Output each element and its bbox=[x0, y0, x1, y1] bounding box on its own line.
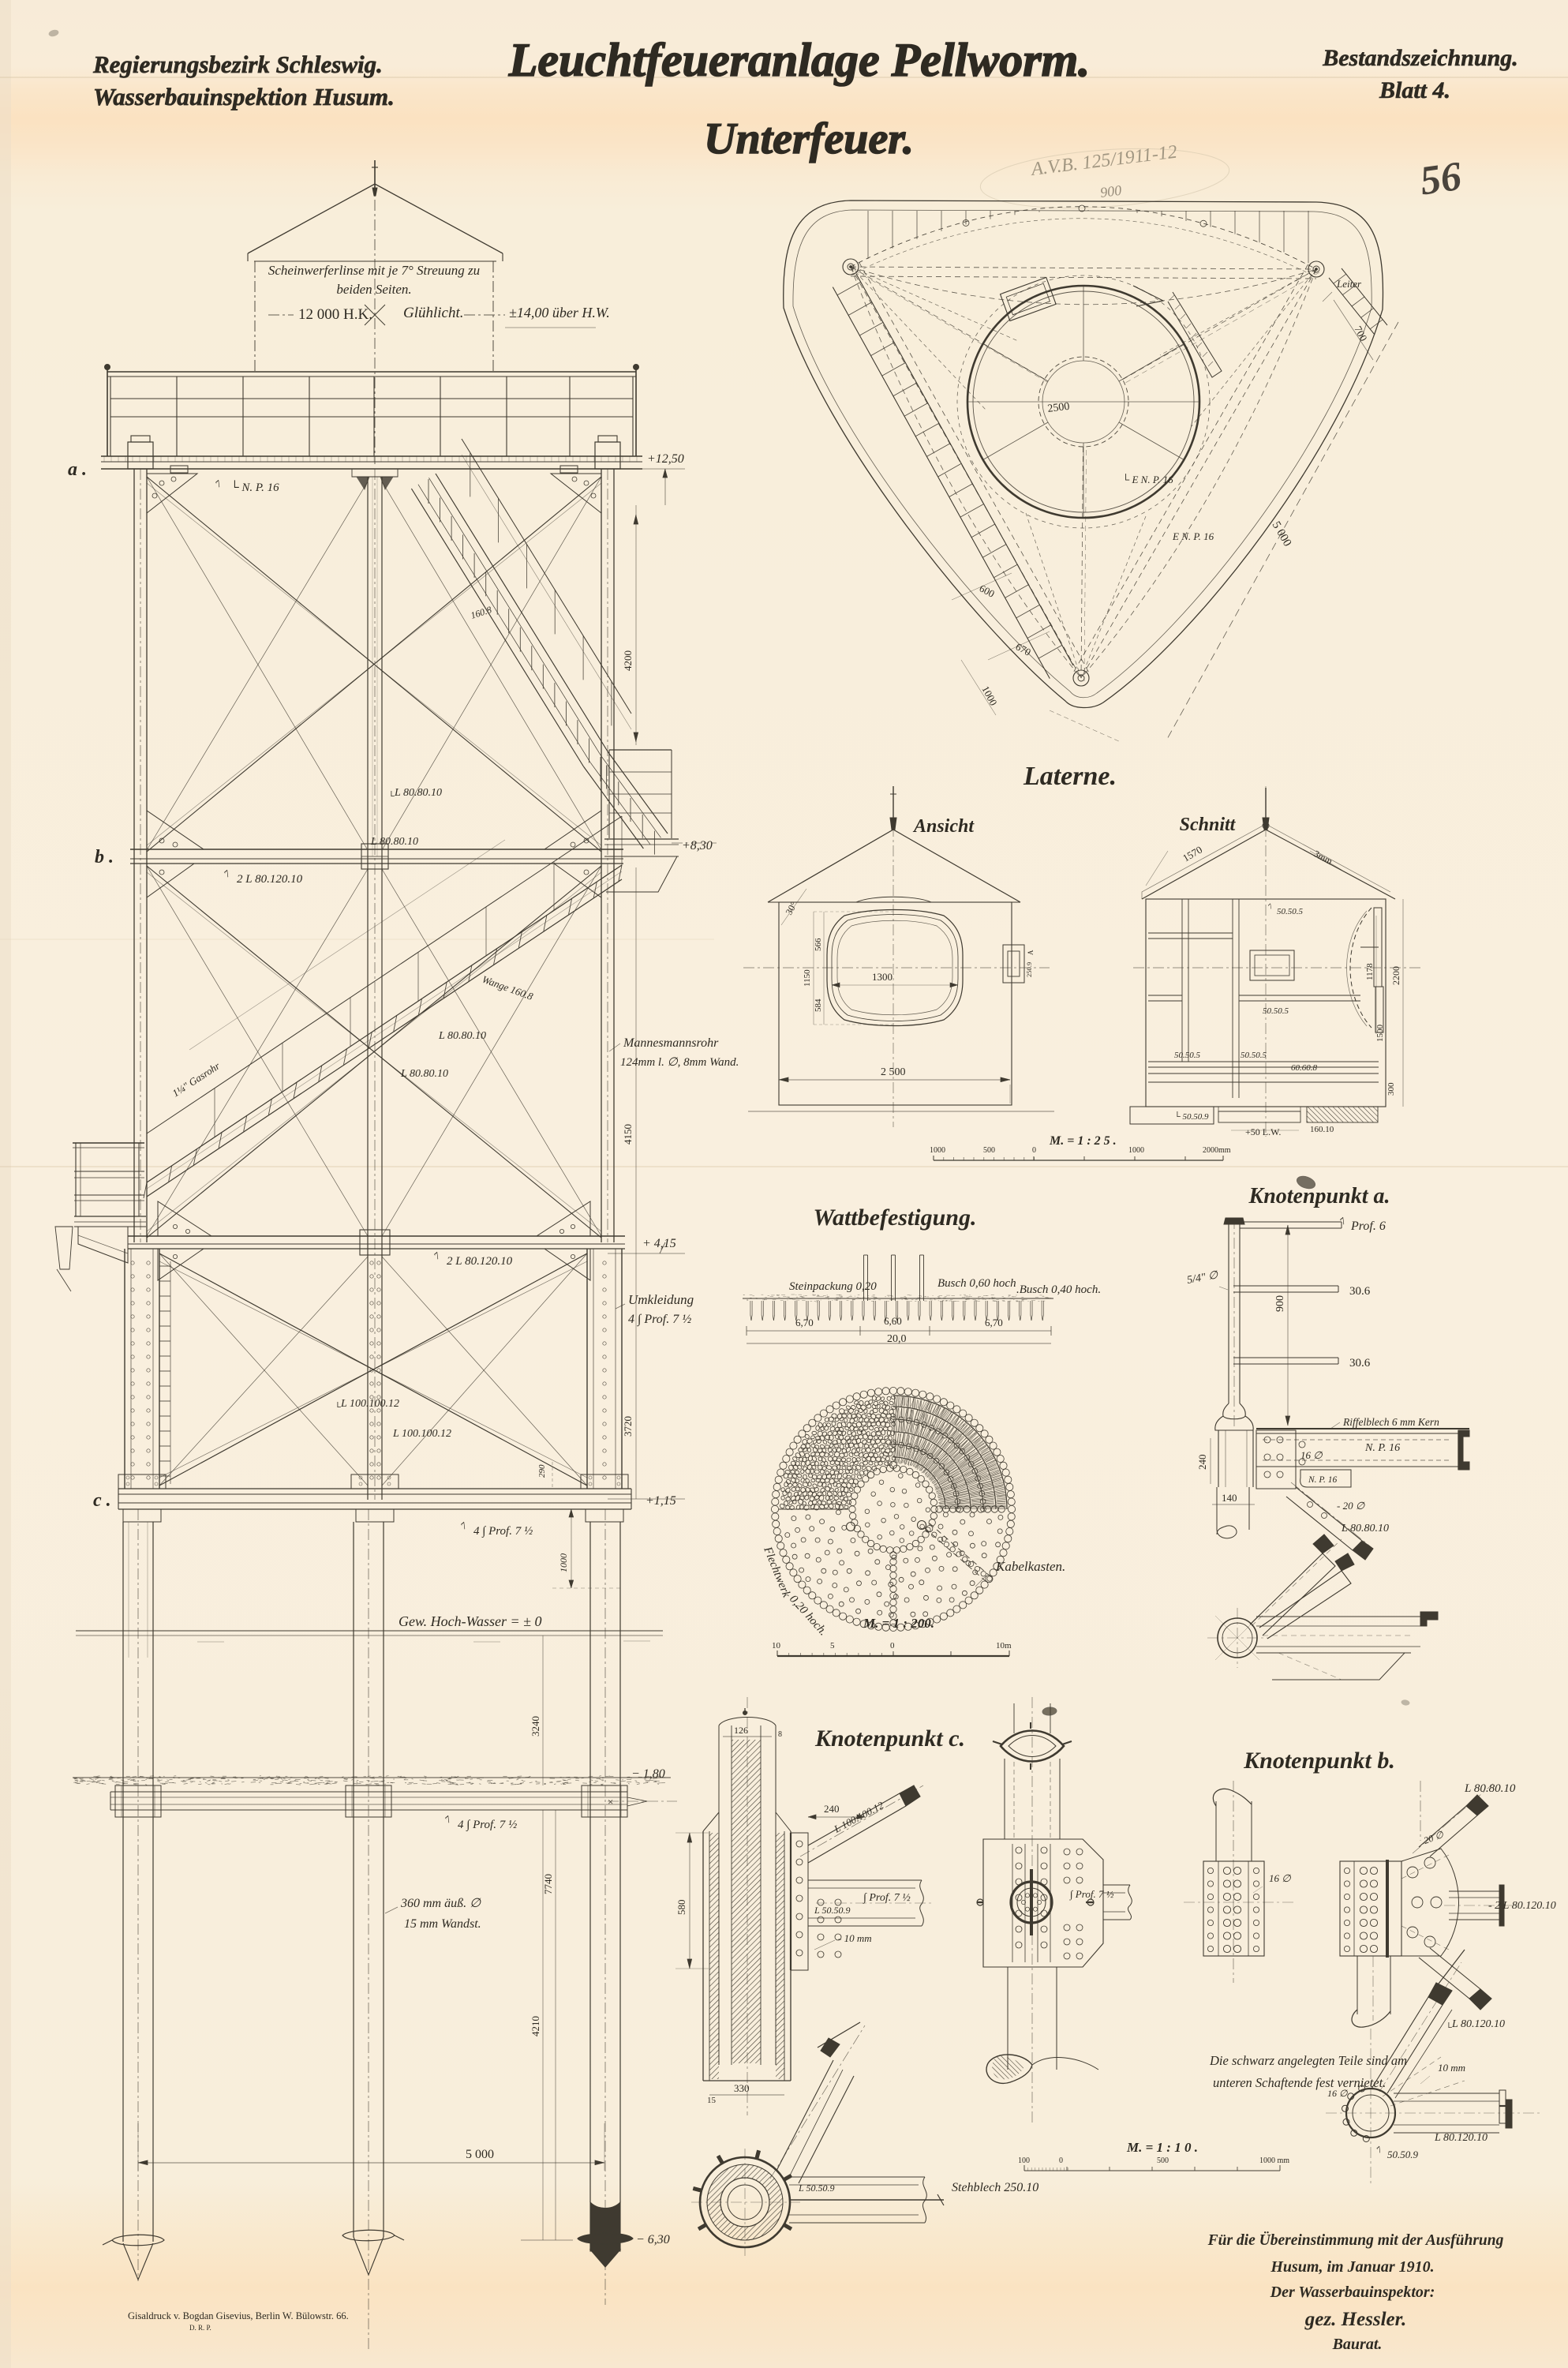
svg-text:12 000 H.K.: 12 000 H.K. bbox=[298, 306, 372, 323]
svg-text:└: └ bbox=[335, 1401, 341, 1412]
svg-text:16 ∅: 16 ∅ bbox=[1327, 2088, 1348, 2099]
svg-text:2 L 80.120.10: 2 L 80.120.10 bbox=[237, 873, 303, 886]
svg-text:584: 584 bbox=[814, 999, 823, 1012]
svg-text:50.50.5: 50.50.5 bbox=[1263, 1006, 1289, 1016]
svg-text:4 ∫ Prof. 7 ½: 4 ∫ Prof. 7 ½ bbox=[473, 1525, 533, 1538]
svg-text:3720: 3720 bbox=[622, 1416, 634, 1437]
svg-text:580: 580 bbox=[675, 1900, 687, 1916]
svg-text:2 L 80.120.10: 2 L 80.120.10 bbox=[447, 1255, 513, 1268]
svg-text:Mannesmannsrohr: Mannesmannsrohr bbox=[623, 1036, 719, 1050]
svg-text:1178: 1178 bbox=[1365, 963, 1375, 980]
svg-text:Busch 0,60 hoch: Busch 0,60 hoch bbox=[937, 1277, 1016, 1290]
svg-text:Für die Übereinstimmung mit de: Für die Übereinstimmung mit der Ausführu… bbox=[1207, 2232, 1504, 2249]
svg-text:Gew. Hoch-Wasser = ± 0: Gew. Hoch-Wasser = ± 0 bbox=[399, 1613, 542, 1629]
svg-text:L 80.80.10: L 80.80.10 bbox=[438, 1030, 486, 1042]
svg-text:6,70: 6,70 bbox=[985, 1317, 1003, 1328]
svg-text:124mm l. ∅, 8mm Wand.: 124mm l. ∅, 8mm Wand. bbox=[620, 1056, 739, 1069]
svg-text:2 500: 2 500 bbox=[881, 1066, 906, 1078]
svg-text:+8,30: +8,30 bbox=[682, 839, 713, 852]
svg-text:gez. Hessler.: gez. Hessler. bbox=[1304, 2309, 1406, 2330]
svg-text:330: 330 bbox=[734, 2082, 750, 2094]
svg-text:└ N. P. 16: └ N. P. 16 bbox=[230, 480, 279, 494]
svg-text:Unterfeuer.: Unterfeuer. bbox=[704, 114, 914, 163]
svg-text:8: 8 bbox=[778, 1730, 782, 1739]
svg-text:Die schwarz angelegten Teile s: Die schwarz angelegten Teile sind am bbox=[1209, 2053, 1407, 2068]
svg-text:900: 900 bbox=[1274, 1295, 1286, 1312]
svg-text:50.50.5: 50.50.5 bbox=[1241, 1051, 1267, 1060]
svg-text:− 1,80: − 1,80 bbox=[631, 1767, 665, 1781]
svg-text:N. P. 16: N. P. 16 bbox=[1308, 1475, 1337, 1485]
svg-text:− 6,30: − 6,30 bbox=[636, 2233, 670, 2246]
svg-text:└ E N. P. 16: └ E N. P. 16 bbox=[1122, 474, 1173, 485]
svg-text:Husum, im Januar 1910.: Husum, im Januar 1910. bbox=[1270, 2258, 1434, 2276]
svg-text:240: 240 bbox=[1196, 1455, 1208, 1471]
svg-text:Knotenpunkt c.: Knotenpunkt c. bbox=[814, 1725, 965, 1752]
svg-text:+1,15: +1,15 bbox=[646, 1494, 676, 1508]
svg-text:4200: 4200 bbox=[622, 650, 634, 671]
svg-text:Umkleidung: Umkleidung bbox=[628, 1292, 694, 1307]
svg-text:360 mm äuß. ∅: 360 mm äuß. ∅ bbox=[400, 1897, 481, 1910]
svg-text:4 ∫ Prof. 7 ½: 4 ∫ Prof. 7 ½ bbox=[628, 1313, 691, 1327]
svg-text:M. = 1 : 1 0 .: M. = 1 : 1 0 . bbox=[1126, 2140, 1198, 2155]
svg-text:30.6: 30.6 bbox=[1349, 1285, 1371, 1298]
svg-text:5: 5 bbox=[830, 1641, 835, 1650]
svg-text:1300: 1300 bbox=[872, 971, 893, 983]
svg-text:L 80.80.10: L 80.80.10 bbox=[1464, 1782, 1516, 1795]
svg-text:1500: 1500 bbox=[1375, 1025, 1385, 1043]
svg-text:c .: c . bbox=[93, 1490, 111, 1511]
svg-text:4210: 4210 bbox=[530, 2016, 541, 2036]
svg-text:56: 56 bbox=[1417, 154, 1464, 204]
svg-text:M. = 1 : 2 5 .: M. = 1 : 2 5 . bbox=[1049, 1134, 1117, 1148]
svg-text:L 80.80.10: L 80.80.10 bbox=[400, 1068, 448, 1080]
svg-text:Knotenpunkt b.: Knotenpunkt b. bbox=[1243, 1748, 1395, 1774]
svg-text:500: 500 bbox=[983, 1146, 995, 1155]
svg-text:0: 0 bbox=[890, 1641, 895, 1650]
svg-text:L 80.80.10: L 80.80.10 bbox=[370, 836, 418, 848]
svg-text:250.9: 250.9 bbox=[1025, 962, 1033, 977]
svg-text:- 2 L 80.120.10: - 2 L 80.120.10 bbox=[1488, 1900, 1556, 1912]
svg-text:2200: 2200 bbox=[1390, 966, 1401, 985]
svg-text:126: 126 bbox=[734, 1725, 748, 1736]
svg-text:b .: b . bbox=[95, 847, 114, 867]
svg-text:5 000: 5 000 bbox=[466, 2148, 494, 2161]
svg-text:±14,00 über H.W.: ±14,00 über H.W. bbox=[509, 305, 610, 320]
svg-text:a .: a . bbox=[68, 459, 87, 480]
svg-text:Leiter: Leiter bbox=[1336, 278, 1362, 290]
svg-text:30.6: 30.6 bbox=[1349, 1357, 1371, 1369]
svg-text:Gisaldruck v. Bogdan Gisevius,: Gisaldruck v. Bogdan Gisevius, Berlin W.… bbox=[128, 2310, 349, 2321]
svg-text:- 20 ∅: - 20 ∅ bbox=[1337, 1500, 1365, 1512]
svg-text:+12,50: +12,50 bbox=[647, 452, 684, 466]
svg-text:6,60: 6,60 bbox=[884, 1315, 902, 1327]
svg-text:100: 100 bbox=[1018, 2156, 1030, 2165]
svg-text:∫ Prof. 7 ½: ∫ Prof. 7 ½ bbox=[863, 1892, 911, 1904]
svg-text:20,0: 20,0 bbox=[887, 1333, 907, 1345]
svg-text:4 ∫ Prof. 7 ½: 4 ∫ Prof. 7 ½ bbox=[458, 1819, 517, 1831]
svg-text:16 ∅: 16 ∅ bbox=[1300, 1449, 1323, 1461]
svg-text:900: 900 bbox=[1099, 182, 1122, 200]
svg-text:16 ∅: 16 ∅ bbox=[1269, 1872, 1291, 1884]
svg-text:6,70: 6,70 bbox=[795, 1317, 814, 1328]
svg-text:10: 10 bbox=[772, 1641, 781, 1650]
svg-text:L 80.80.10: L 80.80.10 bbox=[1341, 1523, 1389, 1534]
svg-text:L 100.100.12: L 100.100.12 bbox=[340, 1398, 399, 1410]
svg-text:566: 566 bbox=[814, 938, 823, 951]
svg-text:.Busch 0,40 hoch.: .Busch 0,40 hoch. bbox=[1016, 1283, 1101, 1296]
svg-text:300: 300 bbox=[1387, 1082, 1396, 1096]
svg-text:- 10 mm: - 10 mm bbox=[838, 1932, 872, 1944]
svg-text:4150: 4150 bbox=[622, 1124, 634, 1145]
svg-text:1000 mm: 1000 mm bbox=[1259, 2156, 1289, 2165]
svg-text:50.50.9: 50.50.9 bbox=[1387, 2149, 1419, 2160]
svg-text:Knotenpunkt a.: Knotenpunkt a. bbox=[1248, 1184, 1390, 1208]
svg-text:50.50.5: 50.50.5 bbox=[1277, 907, 1304, 916]
svg-text:E N. P. 16: E N. P. 16 bbox=[1172, 530, 1214, 542]
svg-text:Schnitt: Schnitt bbox=[1180, 815, 1237, 835]
svg-text:L 50.50.9: L 50.50.9 bbox=[798, 2183, 834, 2194]
svg-text:Laterne.: Laterne. bbox=[1023, 762, 1117, 791]
svg-text:Blatt 4.: Blatt 4. bbox=[1379, 77, 1450, 103]
svg-text:290: 290 bbox=[537, 1464, 547, 1478]
svg-text:Regierungsbezirk Schleswig.: Regierungsbezirk Schleswig. bbox=[92, 51, 383, 78]
svg-text:└ 50.50.9: └ 50.50.9 bbox=[1174, 1111, 1209, 1122]
svg-text:×: × bbox=[608, 1796, 613, 1808]
svg-text:2000mm: 2000mm bbox=[1203, 1146, 1231, 1155]
svg-text:160.10: 160.10 bbox=[1310, 1125, 1334, 1134]
svg-text:0: 0 bbox=[1059, 2156, 1063, 2165]
svg-text:1000: 1000 bbox=[930, 1146, 945, 1155]
svg-text:15: 15 bbox=[707, 2096, 717, 2105]
svg-text:Ansicht: Ansicht bbox=[912, 816, 975, 837]
svg-text:Stehblech 250.10: Stehblech 250.10 bbox=[952, 2181, 1038, 2194]
svg-text:1000: 1000 bbox=[1128, 1146, 1144, 1155]
svg-text:10 mm: 10 mm bbox=[1438, 2062, 1465, 2074]
svg-text:beiden Seiten.: beiden Seiten. bbox=[336, 282, 411, 297]
svg-text:∫ Prof. 7 ½: ∫ Prof. 7 ½ bbox=[1069, 1888, 1114, 1901]
svg-text:Bestandszeichnung.: Bestandszeichnung. bbox=[1322, 45, 1518, 71]
svg-text:Riffelblech 6 mm Kern: Riffelblech 6 mm Kern bbox=[1342, 1416, 1439, 1428]
svg-text:└: └ bbox=[1446, 2021, 1452, 2033]
svg-text:Der Wasserbauinspektor:: Der Wasserbauinspektor: bbox=[1270, 2284, 1435, 2301]
svg-text:Steinpackung 0,20: Steinpackung 0,20 bbox=[789, 1280, 877, 1293]
svg-text:Baurat.: Baurat. bbox=[1332, 2336, 1383, 2353]
svg-text:Wattbefestigung.: Wattbefestigung. bbox=[814, 1205, 977, 1231]
svg-text:240: 240 bbox=[824, 1803, 840, 1815]
svg-text:Scheinwerferlinse mit je 7° St: Scheinwerferlinse mit je 7° Streuung zu bbox=[268, 263, 480, 278]
svg-text:140: 140 bbox=[1222, 1492, 1237, 1504]
svg-text:+50 L.W.: +50 L.W. bbox=[1245, 1126, 1281, 1137]
svg-text:L 50.50.9: L 50.50.9 bbox=[814, 1905, 850, 1916]
svg-text:M. = 1 : 200.: M. = 1 : 200. bbox=[863, 1616, 934, 1631]
svg-text:50.50.5: 50.50.5 bbox=[1174, 1051, 1201, 1060]
svg-text:Glühlicht.: Glühlicht. bbox=[403, 305, 464, 321]
svg-text:Prof. 6: Prof. 6 bbox=[1350, 1220, 1386, 1233]
svg-text:60.60.8: 60.60.8 bbox=[1291, 1063, 1318, 1073]
svg-text:unteren Schaftende fest vernie: unteren Schaftende fest vernietet. bbox=[1213, 2075, 1386, 2090]
svg-text:L 80.120.10: L 80.120.10 bbox=[1451, 2018, 1505, 2030]
svg-text:10m: 10m bbox=[996, 1641, 1012, 1650]
svg-text:0: 0 bbox=[1032, 1146, 1036, 1155]
svg-text:L 100.100.12: L 100.100.12 bbox=[392, 1428, 451, 1440]
svg-text:└: └ bbox=[388, 790, 395, 801]
svg-text:Kabelkasten.: Kabelkasten. bbox=[995, 1559, 1065, 1574]
svg-text:3240: 3240 bbox=[530, 1716, 541, 1737]
svg-text:L 80.80.10: L 80.80.10 bbox=[394, 787, 442, 799]
svg-text:Wasserbauinspektion Husum.: Wasserbauinspektion Husum. bbox=[93, 83, 395, 111]
svg-text:1000: 1000 bbox=[558, 1553, 569, 1572]
svg-text:7740: 7740 bbox=[542, 1874, 554, 1894]
svg-text:15 mm Wandst.: 15 mm Wandst. bbox=[404, 1917, 481, 1931]
svg-text:N. P. 16: N. P. 16 bbox=[1364, 1442, 1400, 1454]
svg-text:+ 4,15: + 4,15 bbox=[642, 1237, 676, 1250]
svg-text:A: A bbox=[1027, 950, 1035, 955]
svg-text:1150: 1150 bbox=[803, 969, 812, 987]
svg-text:Leuchtfeueranlage Pellworm.: Leuchtfeueranlage Pellworm. bbox=[508, 34, 1091, 86]
svg-text:D. R. P.: D. R. P. bbox=[189, 2324, 211, 2332]
svg-text:500: 500 bbox=[1157, 2156, 1169, 2165]
svg-text:L 80.120.10: L 80.120.10 bbox=[1434, 2132, 1488, 2144]
